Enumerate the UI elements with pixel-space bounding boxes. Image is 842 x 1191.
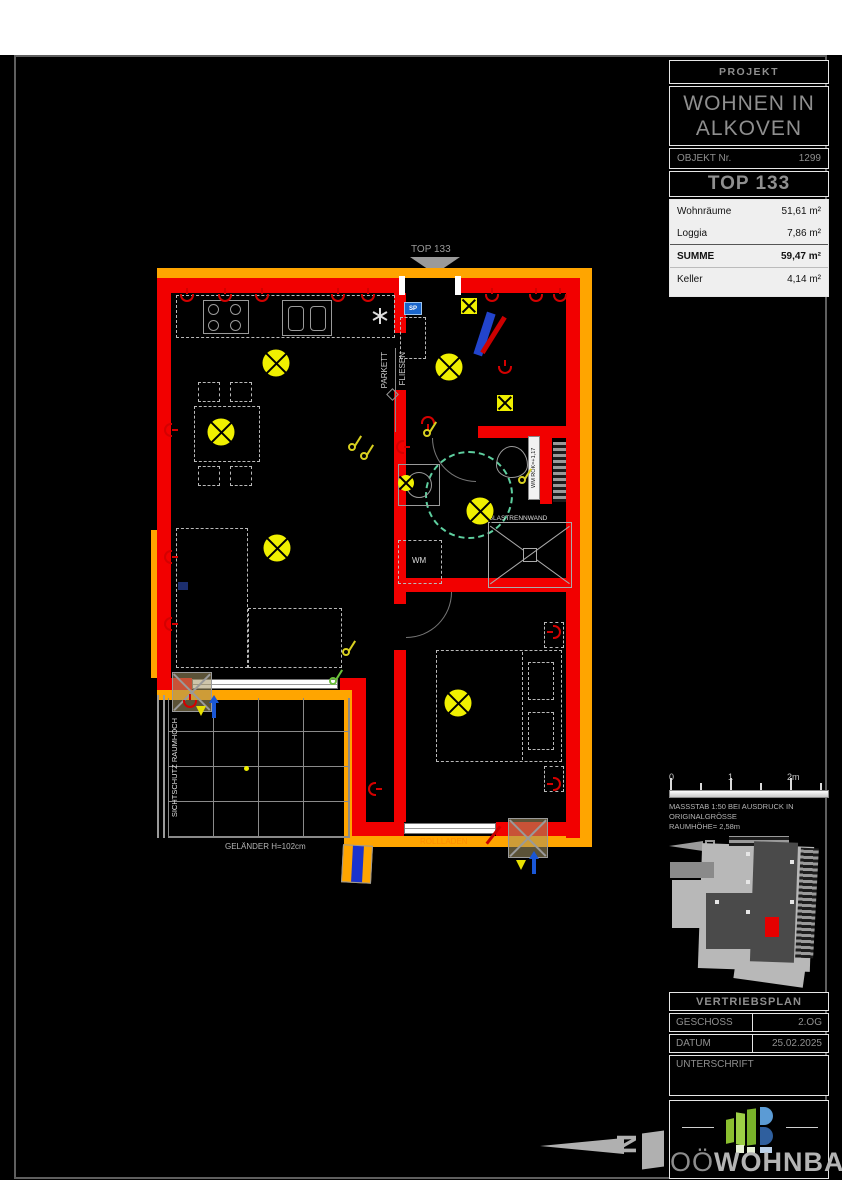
ceiling-light-icon: [264, 535, 291, 562]
spotlight-triangle-icon: [196, 706, 206, 716]
logo-blue-bar: [760, 1107, 773, 1125]
wall-top-right: [458, 278, 580, 293]
project-name-line2: ALKOVEN: [683, 116, 815, 141]
scale-tick: [760, 783, 762, 790]
shaft-hatch: [553, 442, 566, 502]
north-arrow-block: [642, 1130, 664, 1169]
north-letter: N: [610, 1134, 642, 1154]
kitchen-sink: [282, 300, 332, 336]
sofa-chaise-section: [248, 608, 342, 668]
logo-blue-bar: [760, 1127, 773, 1145]
cooktop-burner: [208, 304, 219, 315]
site-window-dot: [790, 900, 794, 904]
area-label: Wohnräume: [677, 206, 731, 217]
site-window-dot: [715, 900, 719, 904]
power-socket-icon: [485, 294, 499, 302]
ceiling-outlet-star-icon: [379, 308, 381, 324]
geschoss-label: GESCHOSS: [670, 1014, 753, 1031]
tv-outlet-icon: [178, 582, 188, 590]
geschoss-row: GESCHOSS 2.OG: [669, 1013, 829, 1032]
scale-bar: [669, 790, 829, 798]
loggia-floor: [168, 698, 350, 838]
cooktop: [203, 300, 249, 334]
parkett-label: PARKETT: [380, 352, 389, 388]
site-window-dot: [746, 910, 750, 914]
area-label: Loggia: [677, 228, 707, 239]
sofa-long-section: [176, 528, 248, 668]
light-switch-icon: [360, 452, 368, 460]
wall-bedroom-left-a: [394, 592, 406, 604]
insulation-band-bottom: [352, 836, 592, 847]
scale-notes: MASSSTAB 1:50 BEI AUSDRUCK IN ORIGINALGR…: [669, 802, 793, 832]
wall-bedroom-bottom-a: [352, 822, 404, 836]
power-socket-icon: [498, 366, 512, 374]
logo-rule-left: [682, 1127, 714, 1128]
site-window-dot: [746, 880, 750, 884]
area-table: Wohnräume 51,61 m² Loggia 7,86 m² SUMME …: [669, 199, 829, 297]
rainpipe-blue-stripe: [351, 846, 364, 883]
site-window-dot: [790, 860, 794, 864]
ceiling-light-icon: [263, 350, 290, 377]
door-jamb-left: [399, 276, 405, 295]
ceiling-light-icon: [445, 690, 472, 717]
logo-text-oo: OÖ: [670, 1147, 714, 1177]
scale-note-line1: MASSSTAB 1:50 BEI AUSDRUCK IN: [669, 802, 793, 812]
scale-tick: [730, 778, 732, 790]
chair: [198, 466, 220, 486]
light-switch-icon: [423, 429, 431, 437]
unterschrift-box: UNTERSCHRIFT: [669, 1055, 829, 1096]
ceiling-light-icon: [436, 354, 463, 381]
ceiling-light-icon: [467, 498, 494, 525]
project-name: WOHNEN IN ALKOVEN: [669, 86, 829, 146]
chair: [198, 382, 220, 402]
datum-row: DATUM 25.02.2025: [669, 1034, 829, 1053]
project-name-line1: WOHNEN IN: [683, 91, 815, 116]
cooktop-burner: [230, 304, 241, 315]
area-value: 7,86 m²: [787, 228, 821, 239]
wall-bedroom-left-b: [394, 650, 406, 822]
shower: [488, 522, 572, 588]
chair: [230, 466, 252, 486]
power-socket-icon: [368, 782, 376, 796]
scale-tick: [820, 783, 822, 790]
logo-rule-right: [786, 1127, 818, 1128]
pillow: [528, 712, 554, 750]
downpipe-arrow-icon: [212, 702, 216, 718]
shower-drain: [523, 548, 537, 562]
site-plan: [669, 834, 829, 990]
power-socket-icon: [164, 550, 172, 564]
window-bedroom: [404, 823, 496, 834]
wall-top-left: [157, 278, 402, 293]
site-building-wing: [706, 893, 758, 949]
area-value: 59,47 m²: [781, 251, 821, 262]
cooktop-burner: [230, 320, 241, 331]
power-socket-icon: [164, 617, 172, 631]
column-box: [508, 818, 548, 858]
ceiling-light-icon: [461, 298, 477, 314]
wc-toilet: [496, 446, 528, 478]
sichtschutz-label: SICHTSCHUTZ RAUMHOCH: [170, 718, 179, 817]
power-socket-icon: [553, 294, 567, 302]
gelaender-label: GELÄNDER H=102cm: [225, 842, 306, 851]
wm-label: WM: [412, 556, 426, 565]
door-jamb-right: [455, 276, 461, 295]
scale-tick: [700, 783, 702, 790]
site-unit-marker: [765, 917, 779, 937]
insulation-band-right: [580, 278, 592, 847]
area-label: SUMME: [677, 251, 714, 262]
area-row-summe: SUMME 59,47 m²: [670, 244, 828, 267]
rollladen-label: ROLLLADEN: [420, 837, 468, 846]
sp-distribution-box: SP: [404, 302, 422, 315]
light-switch-icon: [518, 476, 526, 484]
power-socket-icon: [164, 423, 172, 437]
area-value: 51,61 m²: [782, 206, 821, 217]
area-value: 4,14 m²: [787, 274, 821, 285]
datum-label: DATUM: [670, 1035, 753, 1052]
scale-bar-group: 0 1 2m MASSSTAB 1:50 BEI AUSDRUCK IN ORI…: [669, 772, 829, 830]
ceiling-light-icon: [398, 475, 414, 491]
hall-wardrobe: [400, 317, 426, 359]
scale-tick-label-2: 2m: [787, 772, 800, 782]
scale-tick: [790, 778, 792, 790]
logo-green-bar: [747, 1108, 756, 1145]
insulation-band-top: [157, 268, 592, 278]
site-north-arrow-icon: [669, 841, 703, 851]
sink-drainer: [310, 306, 326, 331]
light-switch-icon: [348, 443, 356, 451]
cooktop-burner: [208, 320, 219, 331]
area-label: Keller: [677, 274, 703, 285]
objekt-value: 1299: [799, 153, 821, 164]
light-switch-icon: [342, 648, 350, 656]
door-arc-bedroom: [406, 592, 452, 638]
loggia-railing-left: [157, 695, 165, 838]
scale-note-line2: ORIGINALGRÖSSE: [669, 812, 793, 822]
top-number: TOP 133: [669, 171, 829, 197]
light-switch-icon: [329, 677, 337, 685]
plan-type-header: VERTRIEBSPLAN: [669, 992, 829, 1011]
bed-headboard-line: [522, 652, 523, 760]
site-window-dot: [746, 852, 750, 856]
logo-mark-icon: [724, 1105, 776, 1149]
wall-wc-niche: [540, 438, 552, 504]
sink-basin: [288, 306, 304, 331]
logo-text-wohnbau: WOHNBAU: [714, 1147, 842, 1177]
area-row-keller: Keller 4,14 m²: [670, 267, 828, 290]
projekt-header: PROJEKT: [669, 60, 829, 84]
wall-loggia-divider: [352, 690, 366, 836]
power-socket-icon: [396, 440, 404, 454]
site-road: [670, 862, 714, 878]
glastrennwand-label: GLASTRENNWAND: [488, 515, 547, 522]
area-row-wohnraeume: Wohnräume 51,61 m²: [670, 200, 828, 222]
loggia-light-dot: [244, 766, 249, 771]
wall-bath-top: [478, 426, 566, 438]
objekt-label: OBJEKT Nr.: [677, 153, 731, 164]
logo-green-bar: [736, 1112, 745, 1146]
scale-note-line3: RAUMHÖHE= 2,58m: [669, 822, 793, 832]
drawing-sheet: TOP 133: [0, 0, 842, 1191]
window-living: [192, 679, 338, 689]
logo-box: OÖWOHNBAU: [669, 1100, 829, 1179]
area-row-loggia: Loggia 7,86 m²: [670, 222, 828, 244]
pillow: [528, 662, 554, 700]
ceiling-light-icon: [208, 419, 235, 446]
logo-green-bar: [726, 1118, 734, 1144]
downpipe-arrow-icon: [532, 858, 536, 874]
scale-tick: [670, 778, 672, 790]
wall-living-bottom-b: [340, 678, 366, 690]
power-socket-icon: [529, 294, 543, 302]
chair: [230, 382, 252, 402]
ceiling-light-icon: [497, 395, 513, 411]
entrance-unit-label: TOP 133: [411, 244, 451, 255]
rainpipe-body: [341, 844, 373, 884]
objekt-row: OBJEKT Nr. 1299: [669, 148, 829, 169]
logo-wordmark: OÖWOHNBAU: [670, 1147, 830, 1178]
spotlight-triangle-icon: [516, 860, 526, 870]
datum-value: 25.02.2025: [753, 1035, 828, 1052]
geschoss-value: 2.OG: [753, 1014, 828, 1031]
